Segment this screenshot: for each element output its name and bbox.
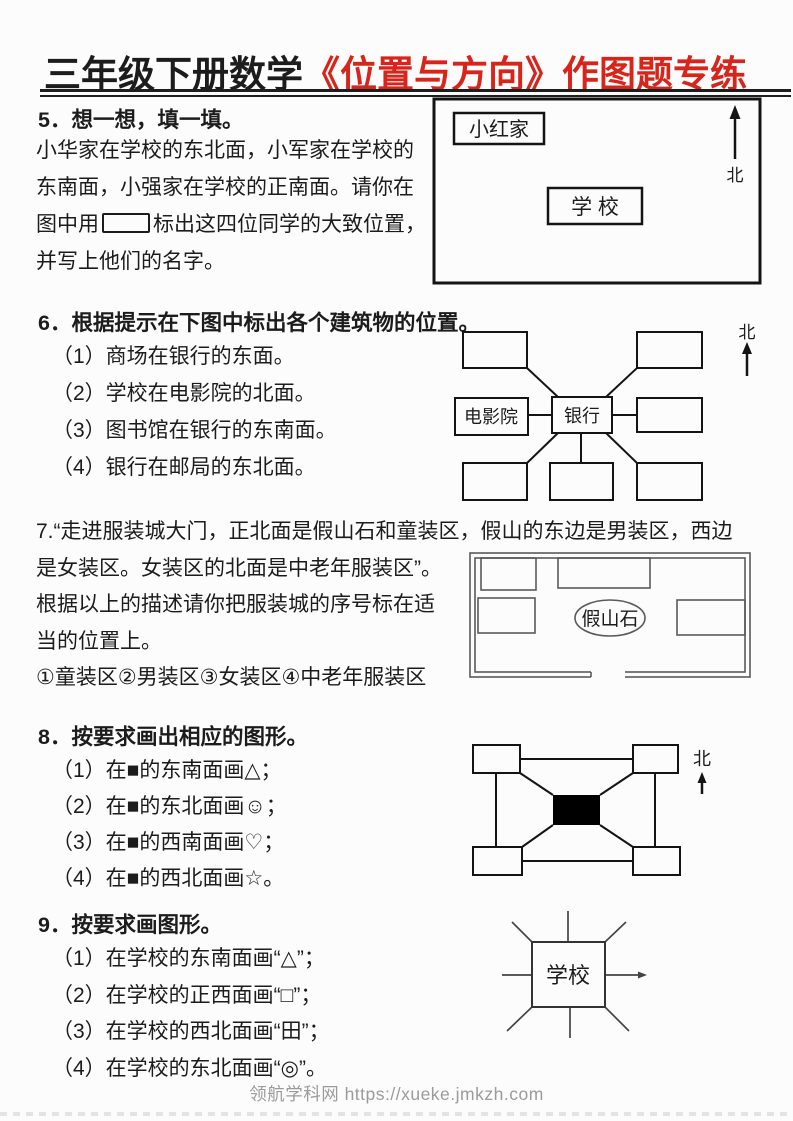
q5-line4: 并写上他们的名字。: [36, 243, 426, 280]
corner-box-northwest: [473, 745, 520, 773]
zone-box-east: [677, 600, 745, 635]
zone-box-north-middle: [558, 558, 650, 588]
blank-box: [102, 213, 150, 233]
q9-school-label: 学校: [546, 963, 590, 988]
xiaohong-house-label: 小红家: [469, 118, 529, 141]
q5-body: 小华家在学校的东北面，小军家在学校的 东南面，小强家在学校的正南面。请你在 图中…: [36, 132, 426, 280]
q9-item-3: （3）在学校的西北面画“田”；: [52, 1014, 330, 1051]
q9-diagram: 学校: [490, 908, 710, 1073]
black-square: [553, 795, 600, 825]
worksheet-page: 三年级下册数学《位置与方向》作图题专练 5．想一想，填一填。 小华家在学校的东北…: [0, 0, 793, 1121]
corner-box-southeast: [633, 847, 680, 875]
q9-heading: 9．按要求画图形。: [38, 908, 222, 939]
q5-line3: 图中用标出这四位同学的大致位置，: [36, 206, 426, 243]
q5-line3-post: 标出这四位同学的大致位置，: [153, 213, 426, 236]
east-arrowhead-icon: [638, 972, 647, 979]
corner-box-southwest: [473, 847, 522, 875]
q6-diagram: 电影院 银行 北: [450, 316, 793, 508]
building-box-southeast: [637, 463, 702, 500]
q5-north-label: 北: [727, 166, 744, 185]
q5-diagram: 小红家 学 校 北: [432, 97, 788, 287]
q9-item-2: （2）在学校的正西面画“□”；: [52, 978, 330, 1015]
q8-heading: 8．按要求画出相应的图形。: [38, 720, 308, 751]
title-divider: [40, 89, 791, 97]
rockery-label: 假山石: [581, 608, 638, 630]
q8-north-label: 北: [693, 749, 711, 769]
q8-items: （1）在■的东南面画△； （2）在■的东北面画☺； （3）在■的西南面画♡； （…: [52, 753, 287, 897]
q6-heading: 6．根据提示在下图中标出各个建筑物的位置。: [38, 306, 480, 337]
next-page-edge: [0, 1112, 793, 1116]
zone-box-north-left: [481, 558, 536, 590]
q8-diagram: 北: [465, 738, 725, 883]
q6-items: （1）商场在银行的东面。 （2）学校在电影院的北面。 （3）图书馆在银行的东南面…: [52, 338, 337, 486]
q9-items: （1）在学校的东南面画“△”； （2）在学校的正西面画“□”； （3）在学校的西…: [52, 941, 330, 1087]
q7-diagram: 假山石: [467, 551, 757, 683]
zone-box-west: [478, 598, 535, 633]
q6-item-2: （2）学校在电影院的北面。: [52, 375, 337, 412]
building-box-east: [637, 398, 702, 432]
q8-item-3: （3）在■的西南面画♡；: [52, 825, 287, 861]
q8-item-4: （4）在■的西北面画☆。: [52, 861, 287, 897]
building-box-northeast: [637, 332, 702, 368]
gate-opening: [591, 669, 625, 681]
site-watermark: 领航学科网 https://xueke.jmkzh.com: [0, 1081, 793, 1106]
q5-line2: 东南面，小强家在学校的正南面。请你在: [36, 169, 426, 206]
q6-item-1: （1）商场在银行的东面。: [52, 338, 337, 375]
q5-line1: 小华家在学校的东北面，小军家在学校的: [36, 132, 426, 169]
building-box-southwest: [463, 463, 527, 500]
north-arrow-icon: [698, 772, 707, 794]
building-box-northwest: [463, 332, 527, 368]
q5-line3-pre: 图中用: [36, 213, 99, 236]
north-arrow-icon: [742, 342, 752, 376]
bank-label: 银行: [564, 406, 600, 426]
q6-north-label: 北: [739, 323, 756, 342]
school-box-label: 学 校: [571, 196, 619, 219]
q5-heading: 5．想一想，填一填。: [38, 103, 243, 134]
q7-line1: 7.“走进服装城大门，正北面是假山石和童装区，假山的东边是男装区，西边: [36, 514, 733, 551]
q8-item-2: （2）在■的东北面画☺；: [52, 789, 287, 825]
q8-item-1: （1）在■的东南面画△；: [52, 753, 287, 789]
north-arrow-icon: [730, 105, 741, 159]
building-box-south: [550, 463, 613, 500]
q6-item-4: （4）银行在邮局的东北面。: [52, 449, 337, 486]
corner-box-northeast: [633, 745, 678, 773]
q9-item-1: （1）在学校的东南面画“△”；: [52, 941, 330, 978]
cinema-label: 电影院: [464, 407, 518, 427]
q6-item-3: （3）图书馆在银行的东南面。: [52, 412, 337, 449]
